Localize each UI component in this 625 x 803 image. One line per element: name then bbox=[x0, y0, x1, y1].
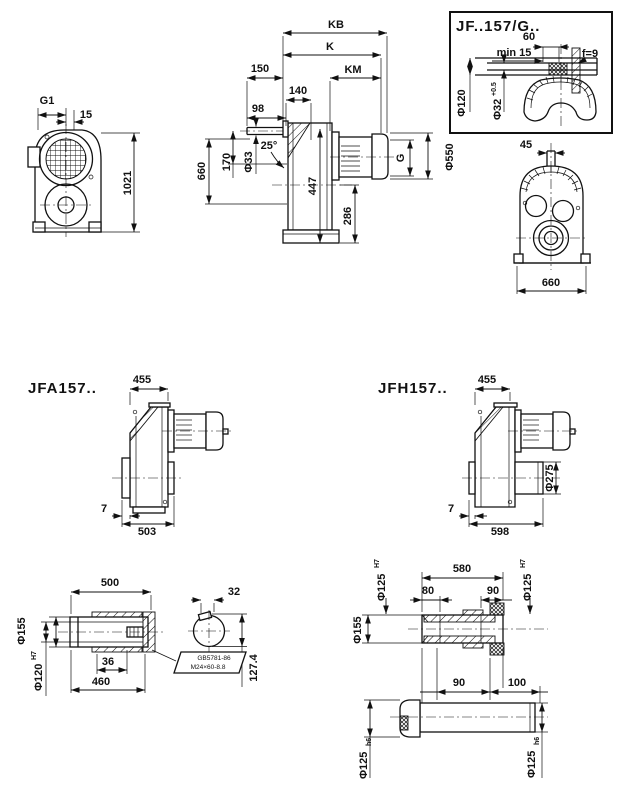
dim-g1: G1 bbox=[38, 95, 66, 130]
dim-45-label: 45 bbox=[520, 139, 532, 151]
dim-phi125h7-left: Φ125 H7 bbox=[374, 559, 388, 614]
dim-7-jfh-label: 7 bbox=[448, 503, 454, 515]
dim-455-jfh-label: 455 bbox=[478, 374, 496, 386]
hollow-shaft-detail: Φ155 Φ125 H7 580 80 90 Φ125 H7 bbox=[352, 559, 548, 779]
dim-phi125h6-left-label: Φ125 bbox=[358, 752, 370, 779]
dim-phi125h7-right-label: Φ125 bbox=[522, 574, 534, 601]
dim-60-label: 60 bbox=[523, 31, 535, 43]
dim-phi33-label: Φ33 bbox=[243, 151, 255, 172]
dim-phi125h6-left-tolerance: h6 bbox=[366, 738, 373, 746]
dim-15: 15 bbox=[56, 109, 92, 130]
dim-k-label: K bbox=[326, 41, 334, 53]
dim-min15-label: min 15 bbox=[497, 47, 532, 59]
dim-460-label: 460 bbox=[92, 676, 110, 688]
dim-503-label: 503 bbox=[138, 526, 156, 538]
engineering-drawing: G1 15 1021 KB K KM 150 bbox=[0, 0, 625, 803]
side-tab bbox=[28, 147, 40, 167]
dim-500: 500 bbox=[71, 577, 151, 614]
callout-standard: GB5781-86 bbox=[197, 655, 231, 662]
base-plate bbox=[283, 230, 339, 243]
dim-phi120h7-tolerance: H7 bbox=[31, 651, 38, 660]
dim-80-label: 80 bbox=[422, 585, 434, 597]
front-view: G1 15 1021 bbox=[28, 95, 140, 237]
dim-phi155-hollow: Φ155 bbox=[352, 615, 368, 644]
solid-shaft-detail: 500 Φ155 Φ120 H7 36 460 32 127.4 bbox=[16, 577, 260, 696]
dim-phi125h6-left: Φ125 h6 bbox=[358, 700, 400, 779]
dim-32: 32 bbox=[191, 586, 240, 613]
dim-phi125h7-right-tolerance: H7 bbox=[520, 559, 527, 568]
motor-flange bbox=[332, 132, 339, 180]
dim-1021: 1021 bbox=[101, 133, 140, 232]
key-block bbox=[400, 716, 408, 730]
jfh-view: JFH157.. 455 Φ275 7 598 bbox=[378, 374, 579, 538]
dim-286: 286 bbox=[340, 185, 359, 243]
dim-660-rear-label: 660 bbox=[542, 277, 560, 289]
dim-98: 98 bbox=[247, 103, 286, 118]
retaining-bolt bbox=[572, 48, 580, 93]
dim-1021-label: 1021 bbox=[122, 171, 134, 195]
jfa-view: JFA157.. 455 7 503 bbox=[28, 374, 232, 538]
dim-286-label: 286 bbox=[342, 207, 354, 225]
dim-km-label: KM bbox=[344, 64, 361, 76]
rear-view: 45 660 bbox=[514, 139, 591, 294]
dim-36-label: 36 bbox=[102, 656, 114, 668]
shrink-disc-top bbox=[490, 603, 504, 615]
dim-100-label: 100 bbox=[508, 677, 526, 689]
rear-foot-right bbox=[581, 254, 590, 263]
dim-36: 36 bbox=[97, 650, 127, 674]
side-view: KB K KM 150 140 98 660 170 Φ33 bbox=[196, 19, 456, 243]
dim-500-label: 500 bbox=[101, 577, 119, 589]
gearbox-dimension-sheet: G1 15 1021 KB K KM 150 bbox=[0, 0, 625, 803]
dim-g: G bbox=[390, 140, 414, 176]
key-section bbox=[549, 63, 567, 75]
shrink-disc-bottom bbox=[490, 643, 504, 655]
dim-140-label: 140 bbox=[289, 85, 307, 97]
dim-g1-label: G1 bbox=[40, 95, 55, 107]
dim-170-label: 170 bbox=[221, 153, 233, 171]
dim-phi155-shaft-label: Φ155 bbox=[16, 617, 28, 644]
dim-km: KM bbox=[330, 64, 381, 131]
dim-phi120h7: Φ120 H7 bbox=[31, 622, 70, 696]
bolt-callout: GB5781-86 M24×60-8.8 bbox=[152, 650, 246, 673]
dim-150-label: 150 bbox=[251, 63, 269, 75]
dim-32-label: 32 bbox=[228, 586, 240, 598]
dim-127-4-label: 127.4 bbox=[248, 653, 260, 681]
dim-80: 80 bbox=[410, 585, 452, 612]
dim-45: 45 bbox=[520, 139, 565, 153]
dim-660-side-label: 660 bbox=[196, 162, 208, 180]
dim-90-lower: 90 bbox=[420, 677, 490, 692]
detail-box: JF..157/G.. 60 min 15 f=9 Φ120 bbox=[450, 12, 612, 133]
dim-phi550-label: Φ550 bbox=[444, 143, 456, 170]
dim-455-jfa-label: 455 bbox=[133, 374, 151, 386]
dim-phi32-tolerance: +0.5 bbox=[491, 82, 498, 96]
dim-kb: KB bbox=[283, 19, 387, 133]
fan-cowl bbox=[372, 134, 388, 179]
dim-15-label: 15 bbox=[80, 109, 92, 121]
dim-phi155-hollow-label: Φ155 bbox=[352, 616, 364, 643]
dim-phi120-box-label: Φ120 bbox=[456, 89, 468, 116]
jfh-title: JFH157.. bbox=[378, 380, 448, 397]
dim-phi275-label: Φ275 bbox=[544, 464, 556, 491]
dim-phi125h6-right-label: Φ125 bbox=[526, 751, 538, 778]
dim-455-jfh: 455 bbox=[475, 374, 510, 405]
dim-150: 150 bbox=[247, 63, 283, 126]
dim-g-label: G bbox=[395, 154, 407, 163]
dim-phi125h7-left-tolerance: H7 bbox=[374, 559, 381, 568]
callout-bolt-size: M24×60-8.8 bbox=[191, 664, 226, 671]
dim-phi32-label: Φ32 bbox=[492, 99, 504, 120]
dim-660-rear: 660 bbox=[517, 266, 586, 294]
dim-100: 100 bbox=[490, 677, 548, 692]
foot-right bbox=[89, 222, 101, 232]
dim-447-label: 447 bbox=[307, 177, 319, 195]
rear-foot-left bbox=[514, 254, 523, 263]
dim-kb-label: KB bbox=[328, 19, 344, 31]
dim-phi125h7-right: Φ125 H7 bbox=[520, 559, 534, 614]
dim-90-upper-label: 90 bbox=[487, 585, 499, 597]
dim-598-label: 598 bbox=[491, 526, 509, 538]
dim-phi125h7-left-label: Φ125 bbox=[376, 574, 388, 601]
dim-7-jfa-label: 7 bbox=[101, 503, 107, 515]
dim-25deg-label: 25° bbox=[261, 140, 278, 152]
dim-580-label: 580 bbox=[453, 563, 471, 575]
dim-90-lower-label: 90 bbox=[453, 677, 465, 689]
dim-phi125h6-right-tolerance: h6 bbox=[534, 737, 541, 745]
dim-f9-label: f=9 bbox=[582, 48, 598, 60]
lower-shaft-body bbox=[420, 703, 535, 732]
foot-left bbox=[33, 222, 45, 232]
jfa-title: JFA157.. bbox=[28, 380, 97, 397]
dim-phi120h7-label: Φ120 bbox=[33, 664, 45, 691]
dim-455-jfa: 455 bbox=[130, 374, 168, 405]
dim-98-label: 98 bbox=[252, 103, 264, 115]
